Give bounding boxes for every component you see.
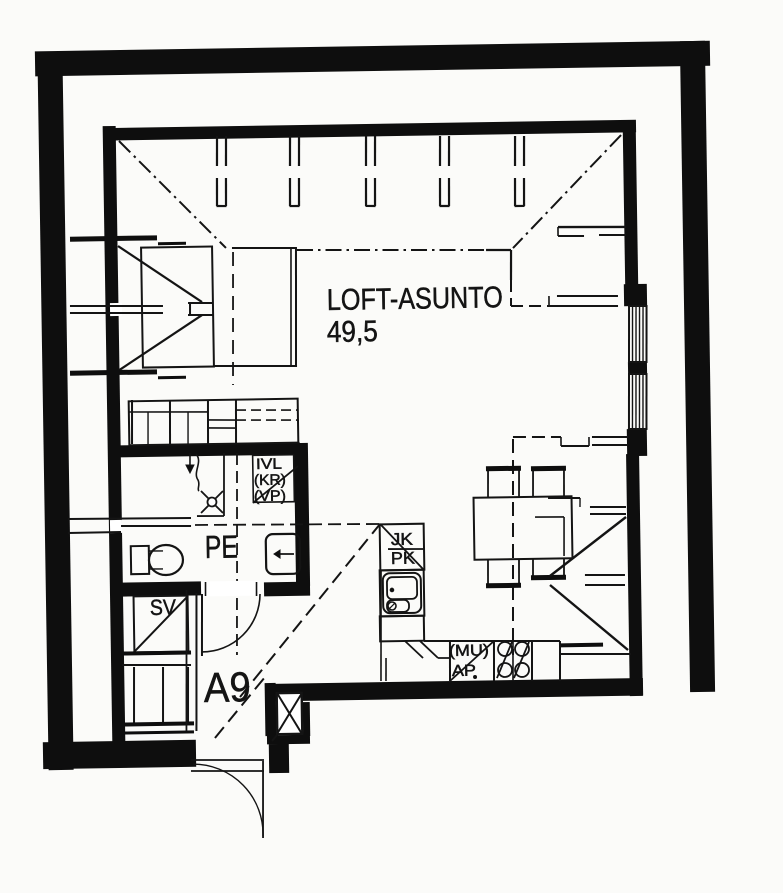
svg-text:JK: JK — [391, 530, 414, 549]
svg-text:PK: PK — [391, 549, 416, 568]
svg-text:A9: A9 — [203, 663, 251, 711]
svg-text:IVL: IVL — [256, 456, 282, 473]
svg-text:(KR): (KR) — [254, 472, 286, 490]
svg-text:LOFT-ASUNTO: LOFT-ASUNTO — [327, 281, 503, 317]
svg-text:49,5: 49,5 — [327, 315, 379, 349]
svg-text:(VP): (VP) — [254, 488, 286, 506]
svg-text:(MU): (MU) — [449, 642, 489, 660]
svg-text:PE: PE — [205, 529, 239, 566]
svg-text:AP: AP — [452, 663, 476, 680]
svg-text:SV: SV — [150, 595, 177, 620]
